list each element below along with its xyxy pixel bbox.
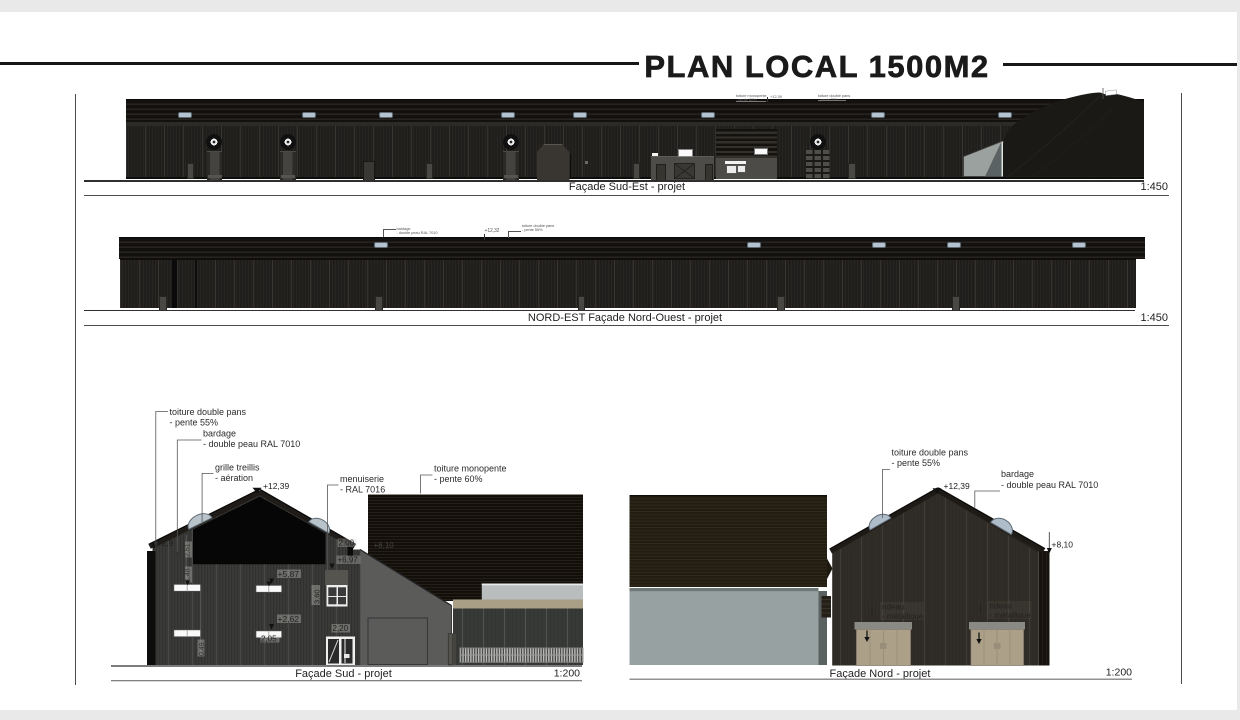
svg-text:2,9: 2,9 (162, 538, 174, 548)
svg-text:2,51: 2,51 (185, 543, 192, 557)
svg-text:+8,10: +8,10 (1052, 540, 1074, 550)
svg-text:- métallique: - métallique (990, 611, 1032, 620)
svg-text:menuiserie: menuiserie (340, 474, 384, 484)
svg-text:1:200: 1:200 (1106, 667, 1132, 679)
svg-text:- pente 55%: - pente 55% (170, 418, 219, 428)
svg-text:1,48: 1,48 (185, 568, 192, 582)
svg-text:Façade Nord - projet: Façade Nord - projet (830, 668, 931, 680)
svg-text:rideau: rideau (882, 603, 904, 612)
svg-text:- RAL 7016: - RAL 7016 (340, 485, 385, 495)
svg-text:2,05: 2,05 (261, 635, 277, 644)
svg-text:+5,87: +5,87 (278, 569, 300, 579)
svg-text:2,20: 2,20 (333, 624, 349, 633)
svg-text:- pente 60%: - pente 60% (434, 474, 483, 484)
svg-text:rideau: rideau (990, 602, 1012, 611)
svg-text:+6,97: +6,97 (338, 556, 359, 565)
svg-text:+12,39: +12,39 (944, 481, 971, 491)
svg-text:2,00: 2,00 (339, 539, 355, 548)
svg-text:3,60: 3,60 (313, 589, 322, 604)
svg-text:grille treillis: grille treillis (215, 463, 260, 473)
svg-text:bardage: bardage (1001, 469, 1034, 479)
svg-text:1:200: 1:200 (554, 668, 580, 680)
svg-text:- pente 55%: - pente 55% (892, 458, 941, 468)
svg-text:+8,10: +8,10 (374, 541, 395, 550)
svg-text:- aération: - aération (215, 473, 253, 483)
svg-text:0,49: 0,49 (199, 642, 206, 656)
svg-text:+2,62: +2,62 (278, 614, 300, 624)
svg-text:- double peau RAL 7010: - double peau RAL 7010 (1001, 480, 1098, 490)
svg-text:- double peau RAL 7010: - double peau RAL 7010 (203, 439, 300, 449)
svg-text:toiture double pans: toiture double pans (170, 407, 247, 417)
svg-text:- métallique: - métallique (882, 612, 924, 621)
svg-text:bardage: bardage (203, 429, 236, 439)
svg-text:Façade Sud - projet: Façade Sud - projet (295, 668, 392, 680)
svg-text:+12,39: +12,39 (263, 481, 290, 491)
svg-text:toiture double pans: toiture double pans (892, 448, 969, 458)
svg-text:toiture monopente: toiture monopente (434, 464, 507, 474)
